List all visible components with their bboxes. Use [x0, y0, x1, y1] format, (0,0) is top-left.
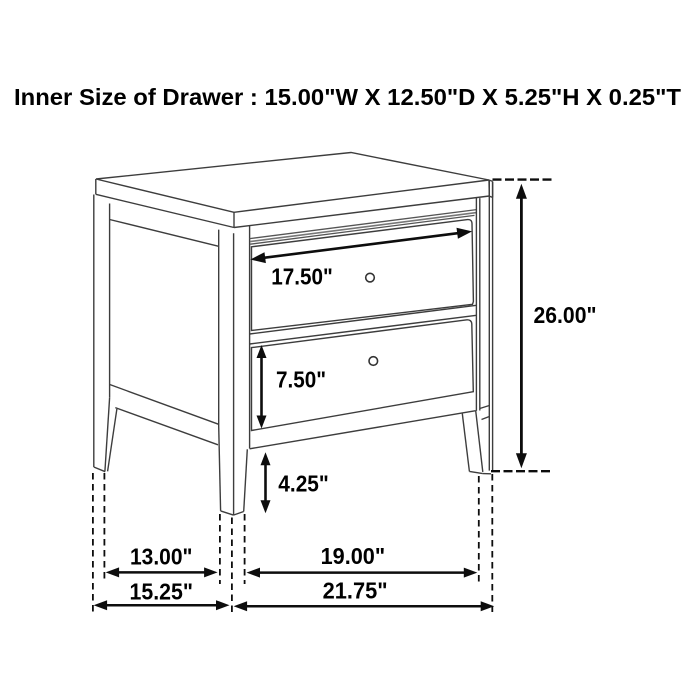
svg-text:Inner Size of Drawer : 15.00"W: Inner Size of Drawer : 15.00"W X 12.50"D… [14, 84, 681, 110]
svg-text:15.25": 15.25" [130, 578, 194, 604]
svg-text:7.50": 7.50" [276, 367, 326, 393]
svg-text:26.00": 26.00" [534, 302, 597, 328]
svg-text:13.00": 13.00" [130, 543, 193, 569]
svg-text:21.75": 21.75" [323, 578, 388, 604]
svg-text:19.00": 19.00" [321, 543, 386, 569]
svg-text:4.25": 4.25" [278, 470, 329, 496]
svg-text:17.50": 17.50" [271, 264, 333, 290]
